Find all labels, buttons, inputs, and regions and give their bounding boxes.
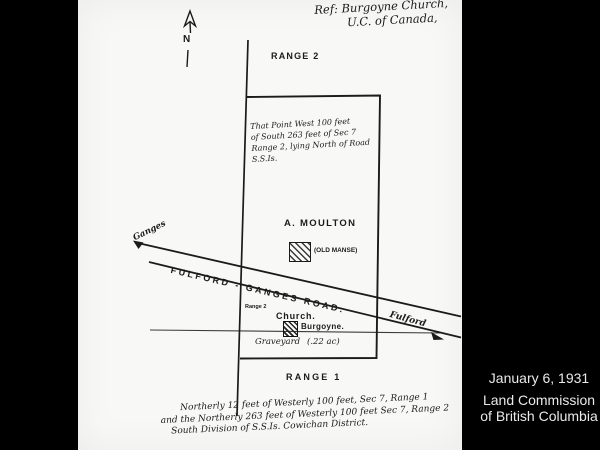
north-label: N <box>183 34 190 46</box>
survey-sketch-lines <box>78 0 462 450</box>
reference-note: Ref: Burgoyne Church, U.C. of Canada, <box>314 0 449 31</box>
graveyard-label: Graveyard <box>255 338 300 348</box>
owner-label: A. MOULTON <box>284 219 356 230</box>
range1-label: RANGE 1 <box>286 372 341 382</box>
section-boundary-line <box>237 40 248 416</box>
scanned-survey-document: Ref: Burgoyne Church, U.C. of Canada, N … <box>78 0 462 450</box>
burgoyne-church-hatched-box <box>283 321 298 337</box>
parcel-description-note: That Point West 100 feet of South 263 fe… <box>250 115 371 165</box>
old-manse-label: (OLD MANSE) <box>314 247 357 254</box>
slide: { "slide": { "caption": { "date": "Janua… <box>0 0 600 450</box>
old-manse-hatched-box <box>289 242 311 262</box>
legal-description-note: Northerly 12 feet of Westerly 100 feet, … <box>160 391 450 438</box>
slide-caption: January 6, 1931 Land Commission of Briti… <box>478 370 600 424</box>
range2-small-label: Range 2 <box>245 304 266 310</box>
range2-label: RANGE 2 <box>271 51 319 61</box>
fulford-arrow-icon <box>431 332 444 340</box>
caption-org-line2: of British Columbia <box>478 408 600 424</box>
fulford-direction-label: Fulford <box>388 310 427 330</box>
area-label: (.22 ac) <box>307 338 340 348</box>
reference-note-line2: U.C. of Canada, <box>347 11 449 30</box>
burgoyne-label: Burgoyne. <box>301 322 344 331</box>
caption-date: January 6, 1931 <box>478 370 600 386</box>
caption-org-line1: Land Commission <box>478 392 600 408</box>
church-label: Church. <box>276 311 316 321</box>
ganges-direction-label: Ganges <box>132 220 168 244</box>
